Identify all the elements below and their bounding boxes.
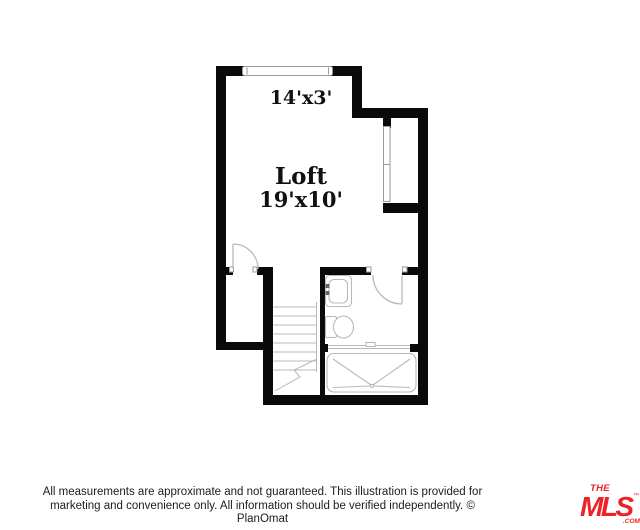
bathtub-drain-icon: [370, 384, 373, 387]
wall: [263, 267, 273, 405]
floor-plan-drawing: 14'x3' Loft 19'x10': [0, 0, 640, 530]
wall: [320, 267, 371, 275]
the-mls-logo: THE MLS ™ .COM: [580, 478, 640, 524]
toilet-bowl-icon: [334, 316, 354, 338]
floor-plan-page: 14'x3' Loft 19'x10' All measurements are…: [0, 0, 640, 530]
window-icon: [243, 67, 333, 76]
wall: [352, 108, 428, 118]
door-swing-arc: [233, 244, 258, 269]
room-name-label: Loft: [275, 163, 327, 190]
wall: [383, 203, 418, 213]
wall: [410, 344, 418, 352]
sink-basin-icon: [329, 280, 348, 304]
area-dimensions-label: 14'x3': [270, 87, 333, 109]
wall: [320, 267, 325, 395]
wall: [263, 395, 428, 405]
sink-faucet-icon: [326, 291, 330, 295]
sink-faucet-icon: [326, 284, 330, 288]
door-jamb: [367, 267, 372, 272]
disclaimer-line-2: marketing and convenience only. All info…: [25, 500, 500, 527]
disclaimer-line-1: All measurements are approximate and not…: [25, 486, 500, 500]
partition-notch: [366, 343, 375, 347]
logo-com-text: .COM: [623, 518, 640, 524]
staircase: [274, 302, 318, 391]
wall: [320, 344, 328, 352]
door-swing-arc: [373, 275, 402, 304]
disclaimer-text: All measurements are approximate and not…: [25, 486, 500, 527]
wall: [418, 108, 428, 405]
door-jamb: [253, 267, 257, 272]
wall: [216, 66, 226, 350]
door-jamb: [403, 267, 408, 272]
logo-trademark-text: ™: [633, 492, 639, 499]
room-dimensions-label: 19'x10': [259, 187, 343, 212]
wall: [257, 267, 273, 275]
stair-direction-line: [275, 359, 317, 391]
